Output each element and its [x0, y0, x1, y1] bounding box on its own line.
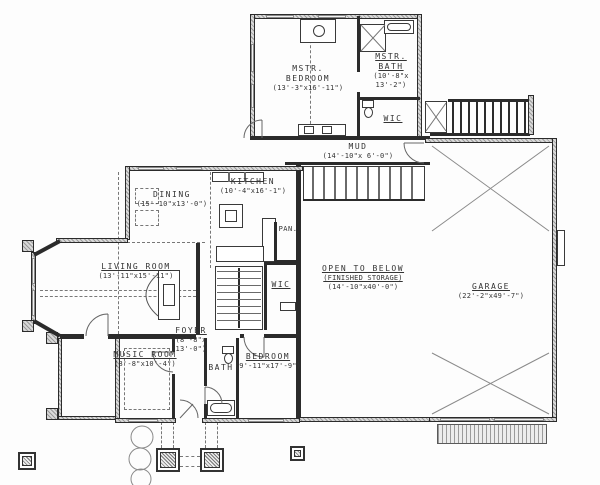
pilaster — [22, 320, 34, 332]
garage-door — [494, 418, 544, 421]
sink — [304, 126, 314, 134]
interior-wall — [296, 162, 301, 422]
stair-tread — [400, 167, 402, 199]
porch-line — [180, 456, 200, 457]
stair-tread — [345, 167, 347, 199]
room-label-living-room: LIVING ROOM (13'-11"x15'-11") — [90, 262, 182, 281]
interior-wall — [236, 338, 239, 422]
deck-baluster — [460, 102, 462, 133]
room-label-kitchen: KITCHEN (10'-4"x16'-1") — [210, 177, 296, 196]
interior-wall — [196, 243, 200, 335]
floor-plan: MSTR. BEDROOM (13'-3"x16'-11") MSTR. BAT… — [0, 0, 600, 485]
toilet-bowl — [364, 107, 373, 118]
interior-wall — [264, 262, 296, 265]
deck-baluster — [468, 102, 470, 133]
deck-baluster — [452, 102, 454, 133]
room-label-mud: MUD (14'-10"x 6'-0") — [310, 142, 406, 161]
window — [266, 15, 294, 18]
room-label-dining: DINING (15'-10"x13'-0") — [128, 190, 216, 209]
room-label-open-to-below: OPEN TO BELOW (FINISHED STORAGE) (14'-10… — [310, 264, 416, 292]
patio-wall — [58, 416, 116, 420]
interior-wall — [240, 334, 244, 338]
patio-door-swing — [86, 314, 108, 336]
room-label-garage: GARAGE (22'-2"x49'-7") — [455, 282, 527, 301]
deck-baluster — [508, 102, 510, 133]
ceiling-line — [127, 242, 205, 243]
exterior-wall — [296, 417, 430, 422]
porch-column — [156, 448, 180, 472]
pilaster — [22, 240, 34, 252]
sink — [322, 126, 332, 134]
porch-column — [200, 448, 224, 472]
porch-column — [290, 446, 305, 461]
stair-tread — [389, 167, 391, 199]
porch-line — [173, 422, 174, 448]
deck-baluster — [516, 102, 518, 133]
room-label-hall-wic: WIC — [266, 280, 296, 290]
stair-tread — [334, 167, 336, 199]
fireplace-insert — [313, 25, 325, 37]
stair-tread — [323, 167, 325, 199]
room-label-mstr-wic: WIC — [374, 114, 412, 124]
fireplace-inner — [163, 284, 175, 306]
interior-wall — [60, 334, 84, 339]
room-label-bedroom: BEDROOM (9'-11"x17'-9") — [234, 352, 302, 371]
stair-rail — [238, 268, 240, 328]
window — [128, 419, 158, 422]
window — [318, 15, 346, 18]
stair-tread — [217, 278, 261, 279]
room-label-bath: BATH — [204, 363, 238, 373]
interior-wall — [264, 262, 267, 330]
room-label-mstr-bath: MSTR. BATH (10'-8"x 13'-2") — [363, 52, 419, 90]
exterior-wall — [250, 14, 255, 140]
porch-column — [18, 452, 36, 470]
stair-edge — [303, 199, 425, 201]
deck-post-box — [425, 101, 447, 133]
deck-baluster — [500, 102, 502, 133]
stair-tread — [217, 285, 261, 286]
kitchen-counter — [216, 246, 264, 262]
tub-inner — [210, 403, 232, 413]
stair-tread — [217, 292, 261, 293]
stair-tread — [217, 271, 261, 272]
stair-tread — [367, 167, 369, 199]
window — [138, 167, 164, 170]
window — [248, 419, 284, 422]
stair-tread — [312, 167, 314, 199]
deck-post — [528, 95, 534, 135]
ceiling-line — [118, 172, 119, 334]
stair-tread — [378, 167, 380, 199]
window — [32, 258, 35, 284]
deck-baluster — [476, 102, 478, 133]
porch-line — [217, 422, 218, 448]
garage-roof-lines — [432, 146, 549, 414]
deck-baluster — [484, 102, 486, 133]
stair-tread — [217, 320, 261, 321]
interior-wall — [172, 374, 175, 422]
porch-line — [161, 422, 162, 448]
driveway-apron — [437, 424, 547, 444]
front-door-swing — [180, 400, 198, 418]
stair-tread — [217, 306, 261, 307]
stair-tread — [217, 299, 261, 300]
staircase — [303, 166, 425, 200]
exterior-wall — [552, 138, 557, 422]
interior-wall — [264, 334, 298, 338]
island-cooktop — [225, 210, 237, 222]
room-label-music-room: MUSIC ROOM (8'-8"x10'-4") — [110, 350, 180, 369]
porch-line — [180, 466, 200, 467]
porch-line — [205, 422, 206, 448]
shrubs — [129, 426, 153, 485]
room-label-mstr-bedroom: MSTR. BEDROOM (13'-3"x16'-11") — [268, 64, 348, 93]
closet-bench — [280, 302, 296, 311]
exterior-wall — [425, 138, 557, 143]
garage-door-swing — [404, 143, 424, 163]
window — [176, 167, 202, 170]
garage-door — [440, 418, 490, 421]
deck-baluster — [492, 102, 494, 133]
patio-wall — [58, 338, 62, 418]
deck-rail — [430, 133, 530, 136]
tub-inner — [387, 23, 411, 31]
stair-tread — [411, 167, 413, 199]
stair-tread — [356, 167, 358, 199]
chimney — [557, 230, 565, 266]
interior-wall — [285, 162, 430, 165]
stair-tread — [217, 313, 261, 314]
pilaster — [46, 408, 58, 420]
bay-angled-walls — [34, 241, 60, 336]
window — [251, 44, 254, 72]
pilaster — [46, 332, 58, 344]
room-label-pantry: PAN. — [274, 225, 302, 234]
window — [32, 290, 35, 316]
exterior-wall — [56, 238, 128, 243]
interior-wall — [250, 136, 430, 140]
ceiling-detail — [135, 210, 159, 226]
shower — [360, 24, 386, 52]
window — [251, 84, 254, 108]
deck-baluster — [524, 102, 526, 133]
